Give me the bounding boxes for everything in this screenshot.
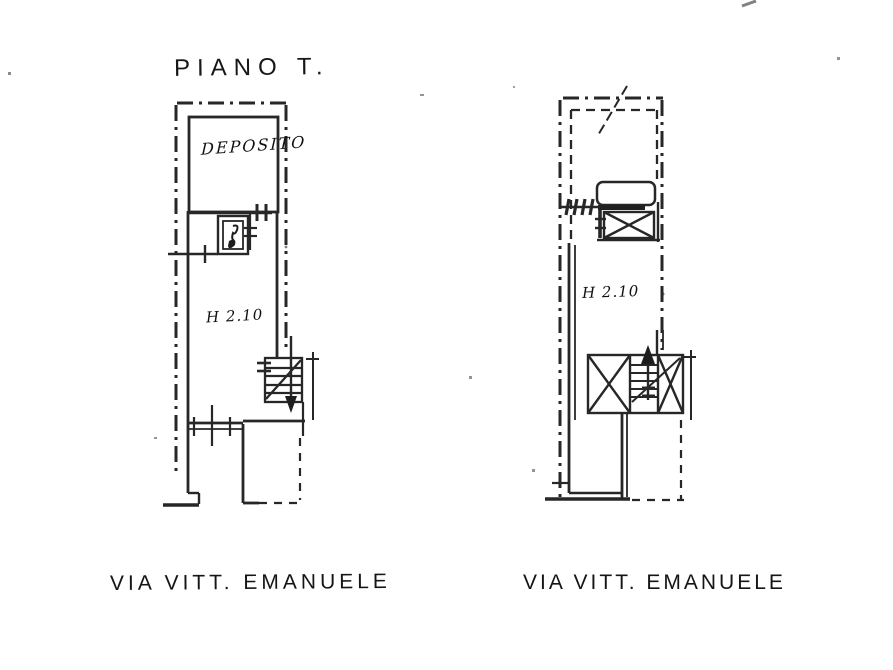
page-title: PIANO T.: [174, 53, 330, 83]
diagonal-reference-line: [597, 86, 627, 137]
height-label-right: H 2.10: [582, 282, 640, 302]
right-plan-dashed-lines: [632, 420, 684, 500]
left-dimension-line: [306, 352, 319, 420]
height-label-left: H 2.10: [206, 306, 264, 327]
down-arrow-icon: [285, 396, 297, 413]
right-plan-main-walls: [545, 243, 663, 499]
stairs-up-symbol: [588, 345, 683, 413]
plan-linework: [0, 0, 893, 670]
scan-specks: [8, 1, 840, 472]
floor-plan-sheet: PIANO T. DEPOSITO H 2.10 H 2.10 VIA VITT…: [0, 0, 893, 670]
stairs-down-symbol: [257, 336, 302, 413]
right-plan-dashed-outline: [571, 110, 657, 240]
wall-fill-bar: [598, 205, 645, 210]
cabinet-outline: [597, 182, 655, 205]
left-plan-boundary: [176, 103, 288, 472]
left-plan-dashed-lines: [259, 438, 302, 503]
street-label-left: VIA VITT. EMANUELE: [110, 570, 391, 596]
right-dimension-line: [684, 350, 696, 420]
left-plan-linework: [163, 103, 319, 505]
deposito-room-outline: [189, 117, 278, 212]
street-label-right: VIA VITT. EMANUELE: [523, 571, 786, 595]
closet-scribble: [228, 226, 238, 249]
left-plan-inner-walls: [168, 204, 272, 263]
